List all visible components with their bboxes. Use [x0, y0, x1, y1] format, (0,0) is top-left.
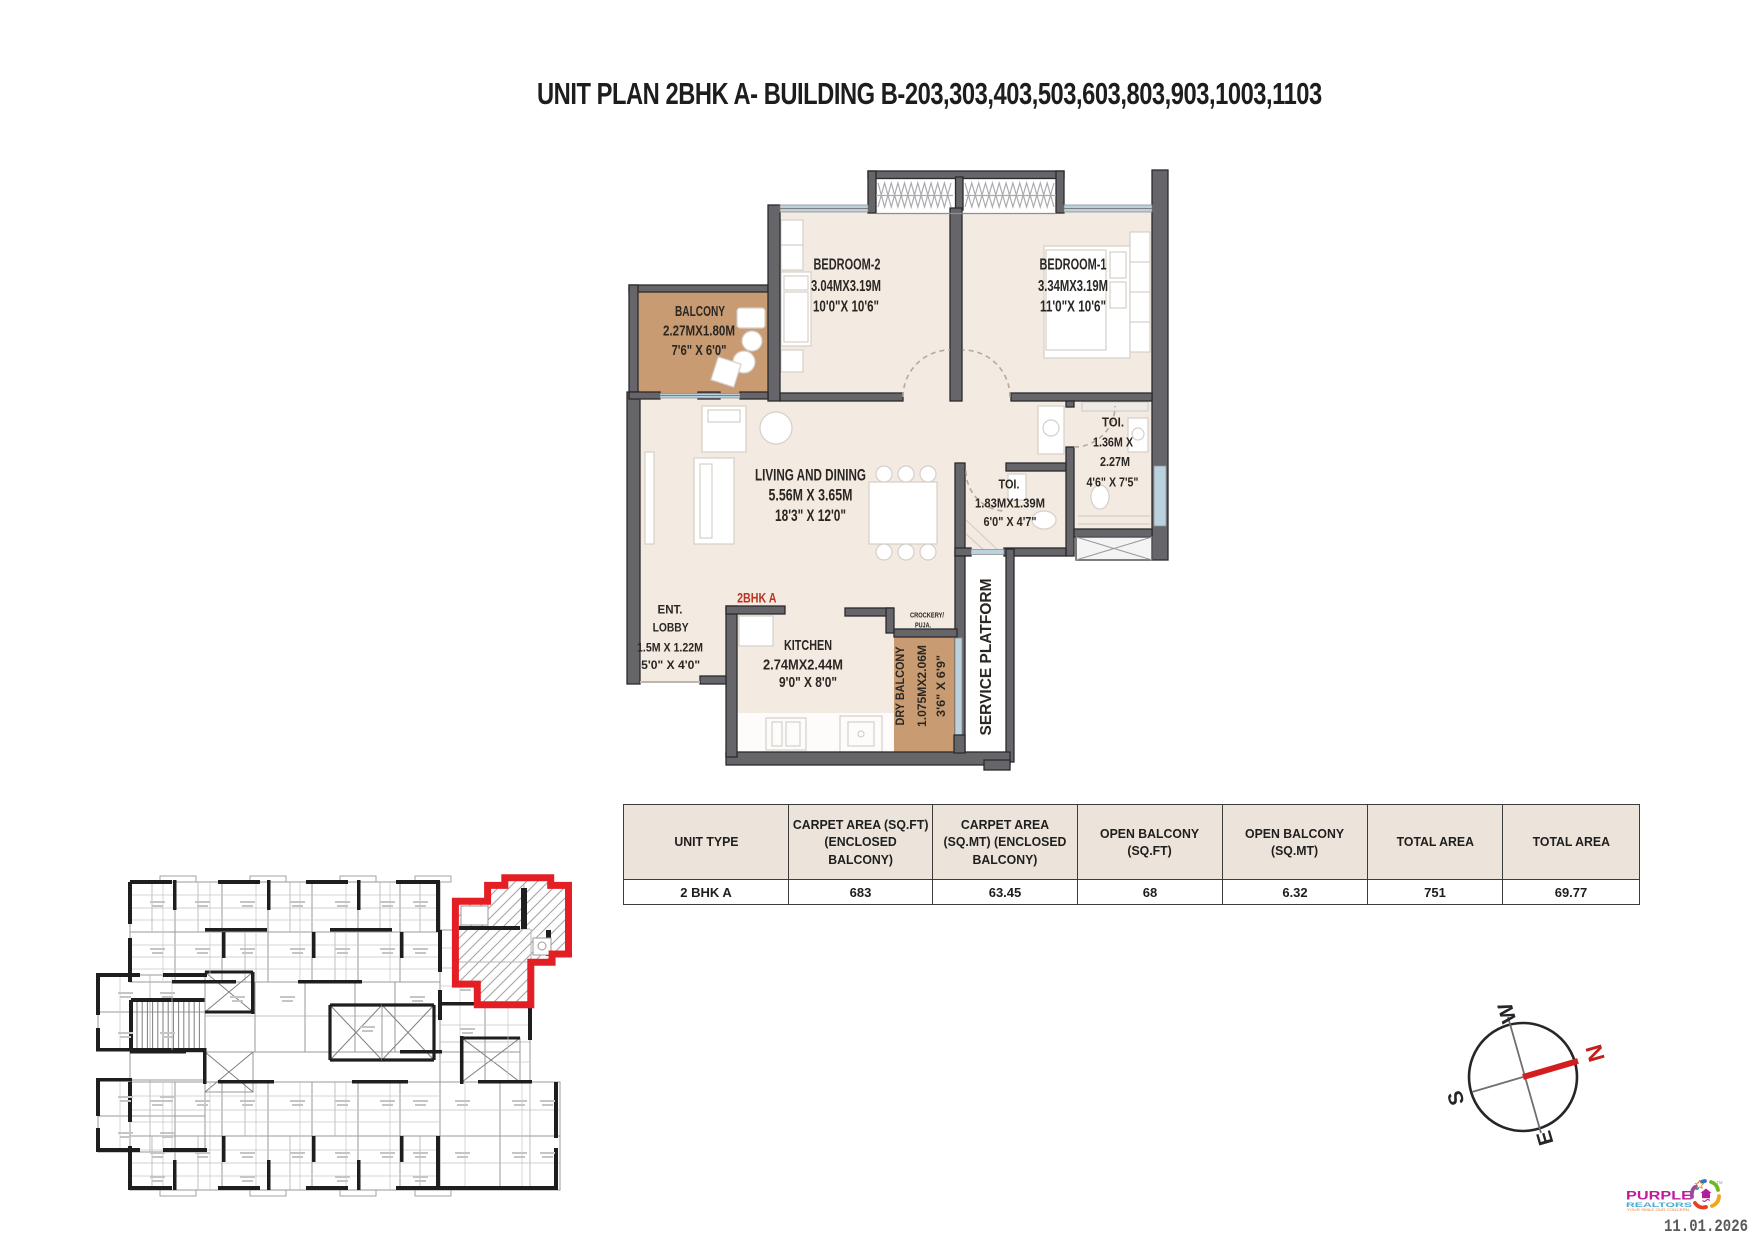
svg-text:KITCHEN: KITCHEN	[784, 637, 832, 654]
svg-text:1.83MX1.39M: 1.83MX1.39M	[975, 497, 1045, 511]
svg-text:CROCKERY/: CROCKERY/	[910, 611, 945, 620]
svg-text:BALCONY: BALCONY	[675, 304, 725, 320]
svg-text:2.27MX1.80M: 2.27MX1.80M	[663, 324, 735, 340]
svg-text:7'6" X 6'0": 7'6" X 6'0"	[672, 343, 727, 359]
svg-text:PURPLE: PURPLE	[1626, 1189, 1692, 1203]
svg-text:3'6" X 6'9": 3'6" X 6'9"	[934, 655, 948, 717]
svg-text:S: S	[1443, 1088, 1469, 1108]
svg-text:1.36M X: 1.36M X	[1093, 436, 1134, 450]
svg-text:E: E	[1532, 1128, 1558, 1148]
svg-text:TOI.: TOI.	[1102, 415, 1124, 429]
svg-text:DRY BALCONY: DRY BALCONY	[893, 647, 907, 726]
svg-text:N: N	[1580, 1042, 1610, 1065]
svg-text:9'0" X 8'0": 9'0" X 8'0"	[779, 674, 837, 691]
svg-text:4'6" X 7'5": 4'6" X 7'5"	[1087, 475, 1139, 489]
svg-text:11.01.2026: 11.01.2026	[1664, 1217, 1748, 1237]
svg-text:ENT.: ENT.	[658, 603, 683, 617]
svg-text:SERVICE PLATFORM: SERVICE PLATFORM	[978, 579, 995, 736]
svg-text:1.5M X 1.22M: 1.5M X 1.22M	[637, 641, 703, 655]
svg-text:10'0"X 10'6": 10'0"X 10'6"	[813, 299, 879, 316]
svg-text:YOUR SMILE OUR CONCERN: YOUR SMILE OUR CONCERN	[1627, 1208, 1689, 1212]
svg-text:BEDROOM-1: BEDROOM-1	[1040, 257, 1107, 274]
svg-text:2.27M: 2.27M	[1100, 455, 1130, 469]
svg-text:2.74MX2.44M: 2.74MX2.44M	[763, 656, 843, 673]
svg-text:5.56M X 3.65M: 5.56M X 3.65M	[769, 486, 853, 505]
svg-text:TM: TM	[1717, 1180, 1724, 1185]
svg-text:BEDROOM-2: BEDROOM-2	[814, 257, 881, 274]
svg-text:2BHK A: 2BHK A	[737, 590, 776, 606]
svg-text:1.075MX2.06M: 1.075MX2.06M	[915, 645, 929, 727]
svg-text:18'3" X 12'0": 18'3" X 12'0"	[775, 506, 846, 525]
svg-text:PUJA.: PUJA.	[915, 621, 931, 630]
svg-text:11'0"X 10'6": 11'0"X 10'6"	[1040, 299, 1106, 316]
svg-text:3.04MX3.19M: 3.04MX3.19M	[811, 278, 881, 295]
svg-text:LIVING AND DINING: LIVING AND DINING	[755, 466, 866, 485]
svg-text:TOI.: TOI.	[999, 477, 1020, 491]
svg-text:LOBBY: LOBBY	[653, 621, 689, 635]
svg-text:6'0" X 4'7": 6'0" X 4'7"	[984, 515, 1037, 529]
svg-text:3.34MX3.19M: 3.34MX3.19M	[1038, 278, 1108, 295]
svg-text:W: W	[1494, 1000, 1522, 1026]
svg-text:5'0" X 4'0": 5'0" X 4'0"	[641, 658, 700, 672]
